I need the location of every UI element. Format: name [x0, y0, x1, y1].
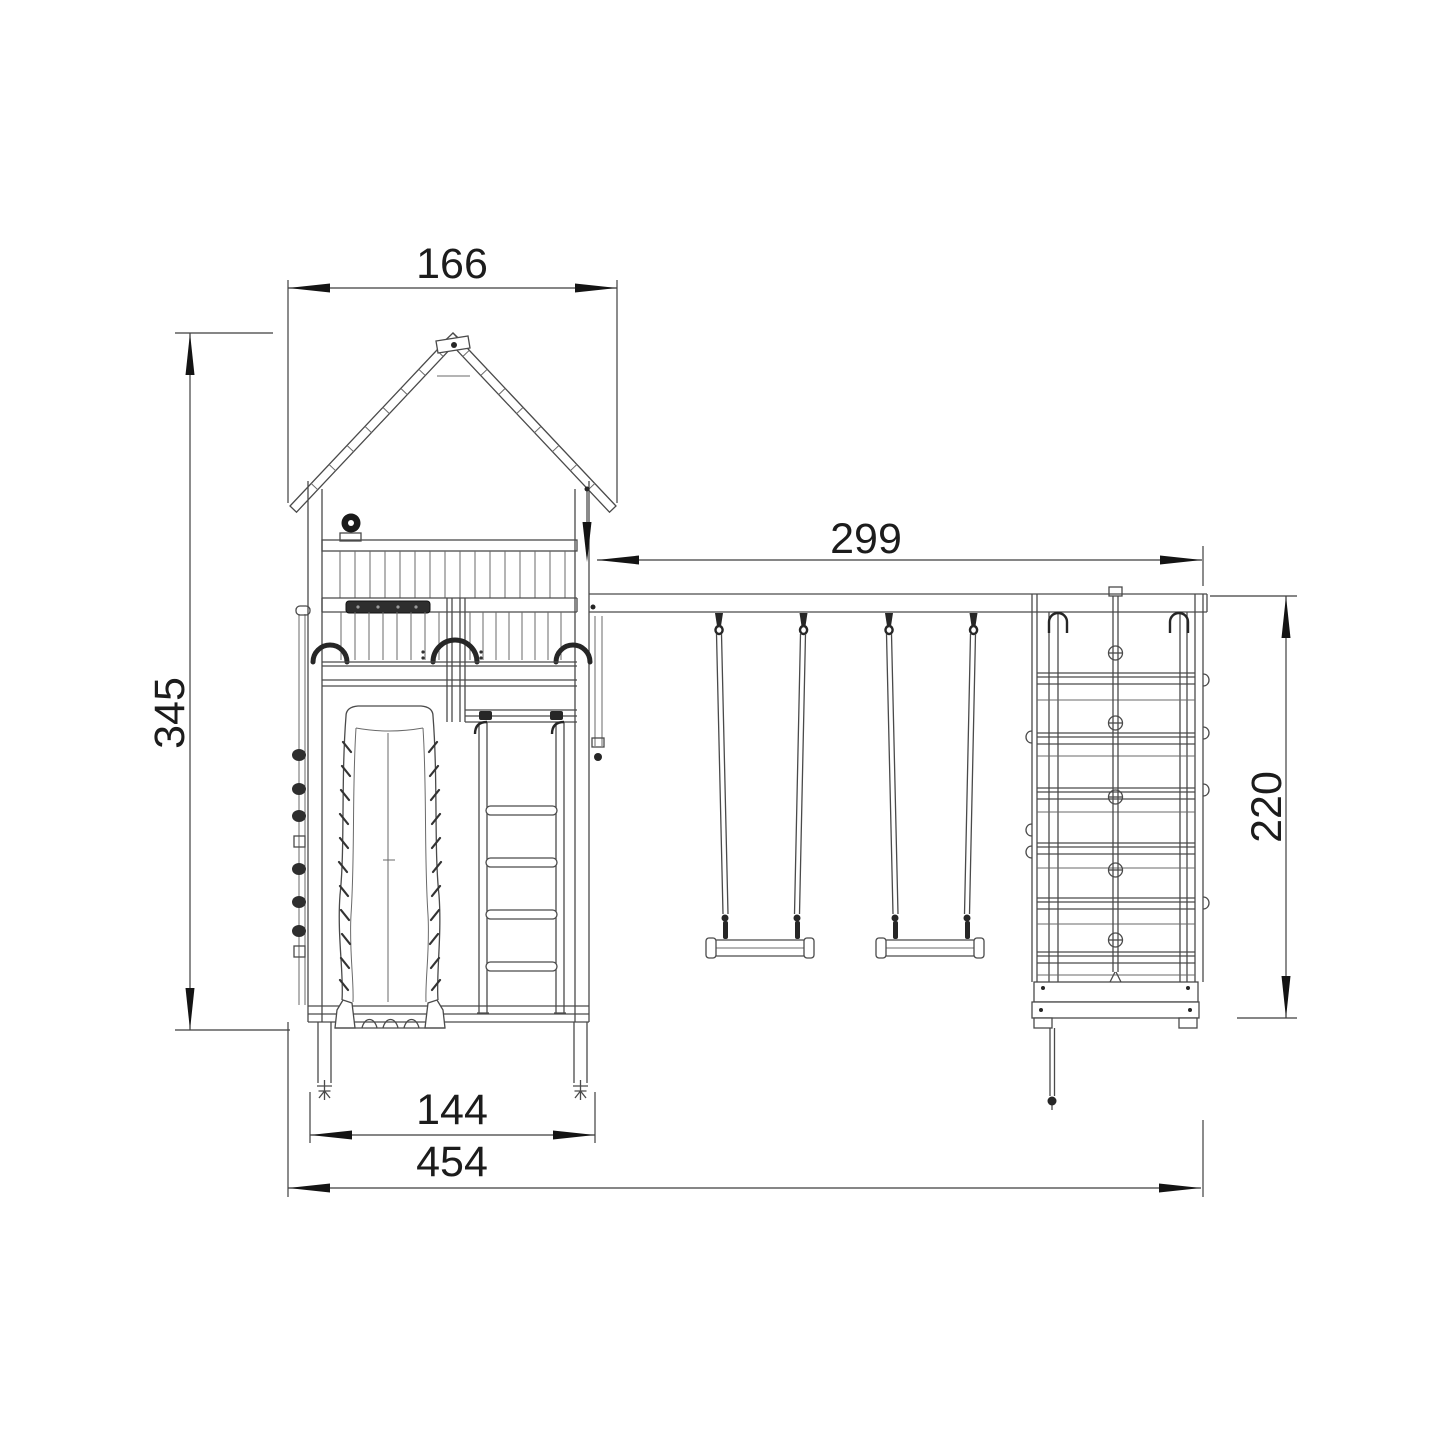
swing-beam [589, 594, 1207, 612]
climbing-frame [1026, 587, 1209, 1110]
platform-floor [322, 662, 577, 686]
frame-plank-backlines [1037, 700, 1195, 975]
balusters-row-1 [340, 551, 565, 598]
porthole-arch-left [313, 645, 347, 662]
dimension-label-166: 166 [416, 240, 488, 288]
ground-anchor-right [573, 1080, 588, 1100]
frame-base [1032, 982, 1199, 1028]
beam-bolt [591, 605, 596, 610]
ladder [475, 722, 566, 1013]
frame-ground-anchor [1048, 1028, 1057, 1110]
slide-foot-left [335, 1000, 355, 1028]
dimension-label-299: 299 [830, 515, 902, 563]
deck-clip-right [550, 711, 563, 720]
slide-entry-lip [356, 728, 423, 731]
ladder-rung-4 [486, 962, 557, 971]
dimension-label-144: 144 [416, 1086, 488, 1134]
slide-foot-scallops [362, 1020, 419, 1028]
slide-hood [346, 706, 433, 716]
steering-knob-center [348, 520, 354, 526]
ridge-bolt [451, 342, 457, 348]
slide-inner-right [423, 728, 428, 1002]
swings [706, 613, 984, 958]
ground-anchor-left [317, 1080, 332, 1100]
right-batten-knob [594, 753, 602, 761]
dimension-label-454: 454 [416, 1138, 488, 1186]
slide-foot-right [425, 1000, 445, 1028]
ladder-rung-1 [486, 806, 557, 815]
dimension-beam-length: 299 [583, 487, 1204, 587]
roof-board-left [290, 333, 460, 512]
drawing-canvas: 166 345 299 220 144 [0, 0, 1445, 1445]
seat-connectors [722, 915, 971, 940]
dimension-tower-base-width: 144 [310, 1086, 595, 1143]
playset-technical-drawing: 166 345 299 220 144 [0, 0, 1445, 1445]
roof-board-right [447, 333, 617, 512]
dimension-label-345: 345 [146, 677, 194, 749]
swing-ropes [717, 634, 976, 914]
roof-board-joint-ticks [311, 350, 595, 489]
tower-legs [318, 1022, 587, 1083]
dimension-label-220: 220 [1243, 771, 1291, 843]
right-batten [595, 616, 602, 746]
center-post [447, 598, 465, 722]
slide [335, 706, 445, 1028]
ladder-hooks [475, 722, 564, 734]
dimension-frame-height: 220 [1210, 596, 1297, 1018]
ladder-rung-3 [486, 910, 557, 919]
roof [290, 333, 616, 512]
balustrade-top-rail [322, 540, 577, 551]
beam-lines [589, 594, 1207, 612]
slide-inner-left [351, 728, 356, 1002]
swing-seat-1 [706, 938, 814, 958]
slide-center-line [383, 733, 395, 1002]
ladder-rung-2 [486, 858, 557, 867]
swing-hangers [715, 613, 978, 634]
dimension-tower-height: 345 [146, 333, 290, 1030]
swing-seat-2 [876, 938, 984, 958]
balusters-row-2-right [470, 612, 561, 660]
deck-clip-left [479, 711, 492, 720]
